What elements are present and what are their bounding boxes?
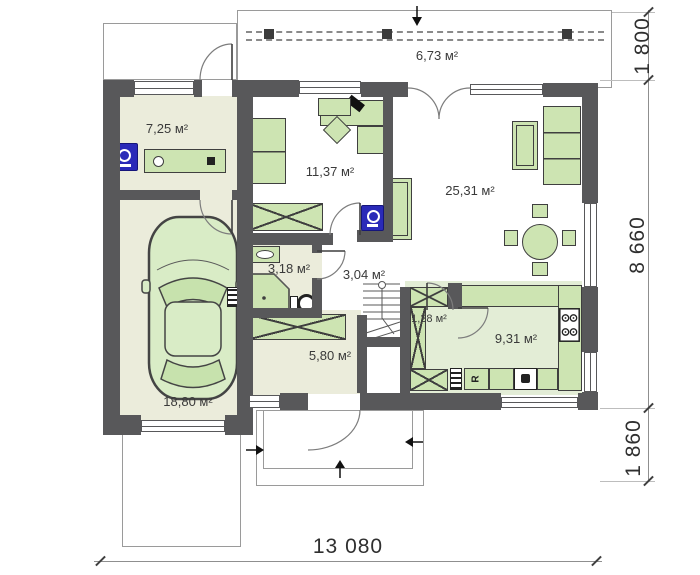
garage-door-swing — [200, 200, 232, 234]
dining-chair — [562, 230, 576, 246]
porch-arrow-icon — [405, 436, 423, 448]
floor-plan: R — [0, 0, 700, 575]
wall-segment — [253, 80, 299, 97]
pantry-door-swing — [427, 283, 453, 310]
wall-segment — [103, 415, 141, 435]
terrace-depth-dimension: 1 800 — [631, 11, 655, 81]
window — [584, 352, 597, 392]
utility-counter — [144, 149, 226, 173]
living-sofa — [543, 106, 581, 185]
wall-segment — [582, 95, 598, 203]
wall-segment — [253, 233, 333, 245]
pantry-area-label: 1,28 м² — [394, 313, 464, 325]
dining-chair — [504, 230, 518, 246]
wall-segment — [400, 287, 410, 393]
window — [299, 81, 361, 94]
wall-segment — [357, 230, 385, 242]
total-width-dimension: 13 080 — [288, 535, 408, 559]
hallway-area-label: 3,04 м² — [319, 267, 409, 282]
terrace-post — [382, 29, 392, 39]
wall-segment — [225, 415, 253, 435]
dimension-line-bottom — [94, 561, 602, 562]
garage-area-label: 18,80 м² — [133, 394, 243, 409]
pantry-cabinet — [410, 369, 448, 391]
house-depth-dimension: 8 660 — [626, 210, 650, 280]
wall-segment — [578, 393, 598, 410]
wall-segment — [361, 82, 408, 97]
utility-floor — [110, 86, 245, 196]
door-opening — [202, 81, 232, 96]
terrace-area-label: 6,73 м² — [382, 48, 492, 63]
wall-segment — [280, 393, 308, 410]
terrace-decking — [246, 31, 604, 33]
wall-segment — [232, 190, 237, 200]
fridge-label: R — [467, 368, 487, 391]
window — [134, 81, 194, 95]
desk-return — [357, 126, 384, 154]
back-door-swing — [200, 44, 232, 80]
porch-arrow-icon — [334, 460, 346, 478]
radiator-icon — [450, 368, 462, 390]
wall-segment — [103, 80, 134, 97]
terrace-post — [562, 29, 572, 39]
wall-segment — [237, 80, 253, 435]
wardrobe — [249, 203, 323, 231]
garage-door — [141, 420, 225, 432]
fridge: R — [464, 368, 489, 390]
window — [584, 203, 597, 287]
front-door-opening — [308, 394, 360, 409]
wall-segment — [120, 190, 200, 200]
car-icon — [142, 212, 244, 404]
living-area-label: 25,31 м² — [415, 183, 525, 198]
terrace-post — [264, 29, 274, 39]
hall-area-label: 5,80 м² — [275, 348, 385, 363]
wall-segment — [194, 80, 202, 97]
armchair — [512, 121, 538, 170]
boiler-icon — [361, 205, 384, 231]
wall-segment — [360, 393, 501, 410]
cabinet-door-swing — [330, 203, 360, 235]
front-door-swing — [308, 410, 360, 450]
window — [249, 395, 280, 408]
dining-chair — [532, 204, 548, 218]
driveway-outline — [122, 430, 241, 547]
porch-depth-dimension: 1 860 — [622, 413, 646, 483]
kitchen-counter — [489, 368, 514, 390]
wall-segment — [245, 308, 315, 318]
staircase — [363, 278, 400, 340]
sideboard — [318, 98, 351, 116]
window — [470, 84, 543, 95]
dining-chair — [532, 262, 548, 276]
terrace-decking — [246, 39, 604, 41]
sink-icon — [514, 368, 537, 390]
kitchen-counter — [537, 368, 558, 390]
cabinet-area-label: 11,37 м² — [275, 164, 385, 179]
terrace-entry-arrow-icon — [409, 6, 425, 26]
window — [501, 397, 578, 408]
porch-arrow-icon — [246, 444, 264, 456]
terrace-double-door-swing — [408, 88, 470, 120]
dining-table — [522, 224, 558, 260]
utility-area-label: 7,25 м² — [112, 121, 222, 136]
kitchen-area-label: 9,31 м² — [461, 331, 571, 346]
wall-segment — [582, 287, 598, 352]
